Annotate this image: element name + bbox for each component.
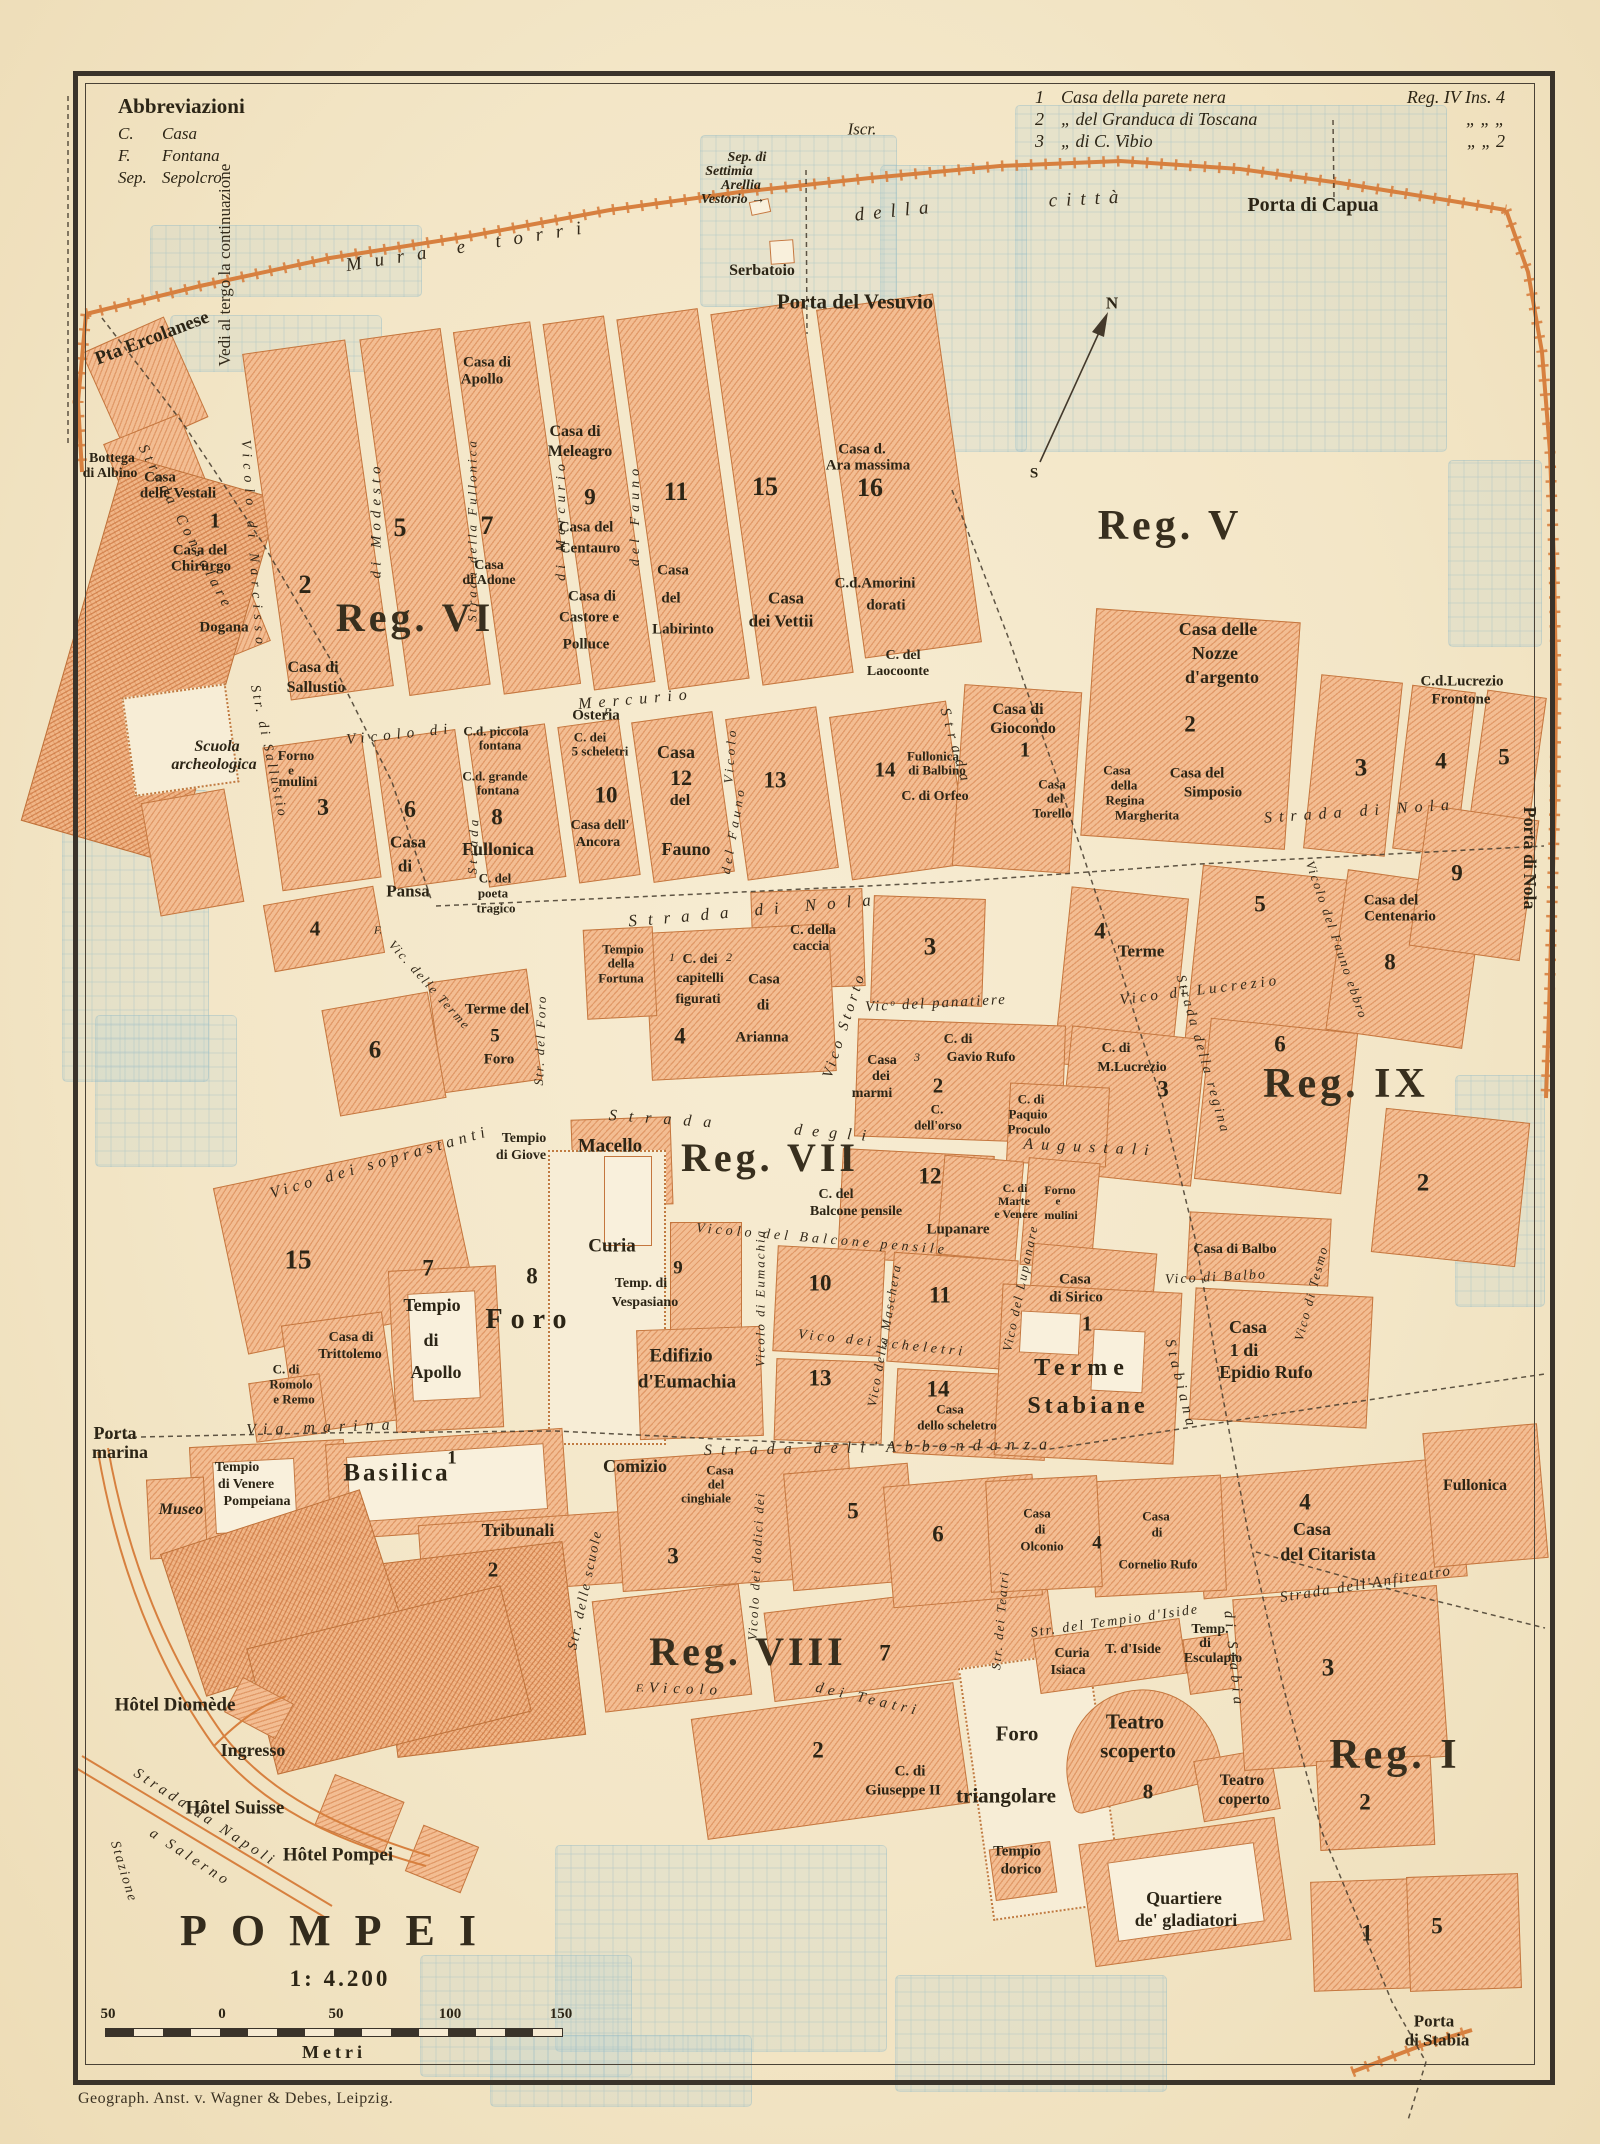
map-label: 9	[673, 1259, 683, 1278]
map-label: C. di	[273, 1363, 300, 1376]
map-label: Casa	[657, 564, 689, 579]
map-label: Casa	[1293, 1520, 1331, 1538]
map-label: 7	[879, 1642, 891, 1665]
map-label: Romolo	[269, 1378, 312, 1391]
map-label: di Albino	[83, 467, 138, 481]
map-sheet: Iscr.Sep. diSettimiaArelliaVestorio →Mur…	[0, 0, 1600, 2144]
map-label: Vicolo	[649, 1681, 724, 1699]
map-label: Casa di	[549, 424, 600, 440]
map-label: Casa	[1229, 1318, 1267, 1336]
publisher-imprint: Geograph. Anst. v. Wagner & Debes, Leipz…	[78, 2090, 393, 2108]
scale-number: 100	[439, 2006, 462, 2023]
map-label: Dogana	[199, 621, 248, 636]
map-label: C. del	[819, 1188, 854, 1202]
map-label: Fauno	[661, 840, 710, 858]
map-label: Fullonica	[1443, 1478, 1507, 1494]
map-label: Terme del	[465, 1003, 529, 1018]
map-label: Terme	[1118, 943, 1165, 960]
map-label: coperto	[1218, 1792, 1270, 1808]
map-title-block: POMPEI 1: 4.200	[140, 1905, 540, 1992]
map-label: 11	[664, 479, 689, 505]
map-label: 3	[667, 1545, 679, 1568]
map-label: 12	[919, 1165, 942, 1188]
insula-block	[769, 239, 795, 265]
map-label: 6	[369, 1038, 382, 1063]
map-label: del	[708, 1478, 725, 1491]
scale-number: 50	[329, 2006, 344, 2023]
map-label: Pompeiana	[224, 1495, 291, 1509]
map-label: 12	[670, 767, 692, 789]
map-label: Teatro	[1220, 1773, 1264, 1789]
map-label: Str. del Foro	[532, 994, 548, 1085]
map-label: Arianna	[735, 1031, 788, 1046]
map-label: di Adone	[462, 574, 515, 588]
map-label: Stazione	[107, 1840, 139, 1905]
map-label: fontana	[479, 739, 522, 752]
map-label: Hôtel Pompei	[283, 1846, 393, 1865]
map-label: Teatro	[1106, 1712, 1164, 1733]
map-label: del	[1047, 792, 1064, 805]
scale-number: 50	[101, 2006, 116, 2023]
map-label: del Fauno	[629, 464, 643, 566]
insula-block	[263, 886, 385, 972]
map-label: Marte	[998, 1195, 1030, 1207]
map-label: capitelli	[676, 972, 723, 986]
map-label: Porta del Vesuvio	[777, 292, 933, 313]
map-label: M.Lucrezio	[1097, 1061, 1166, 1075]
map-label: 2	[299, 572, 312, 598]
map-label: 4	[1092, 1534, 1102, 1553]
map-label: 3	[1322, 1656, 1335, 1681]
map-label: poeta	[478, 887, 508, 900]
map-label: Casa	[1038, 778, 1065, 791]
map-label: Casa delle	[1179, 620, 1258, 638]
scale-number: 0	[218, 2006, 226, 2023]
map-scale-ratio: 1: 4.200	[140, 1966, 540, 1992]
map-label: Centenario	[1364, 910, 1436, 925]
margin-note: Vedi al tergo la continuazione	[215, 70, 235, 460]
map-label: Casa di	[329, 1331, 374, 1345]
map-label: Vicolo	[722, 726, 739, 784]
map-label: C. dei	[683, 953, 718, 967]
map-label: 3	[1355, 756, 1368, 781]
map-label: 4	[1094, 920, 1106, 943]
map-label: 10	[595, 784, 618, 807]
map-label: Gavio Rufo	[947, 1051, 1016, 1065]
scale-bar-rule	[105, 2028, 563, 2037]
map-label: mulini	[279, 776, 318, 790]
map-label: Foro	[484, 1053, 515, 1068]
map-label: Casa di	[568, 590, 616, 605]
map-label: Tempio	[215, 1461, 260, 1475]
legend-house-row: 1Casa della parete neraReg. IV Ins. 4	[1035, 86, 1505, 108]
map-label: 11	[929, 1284, 951, 1307]
map-label: 3	[317, 796, 329, 820]
map-label: Casa	[1059, 1273, 1091, 1288]
map-label: N	[1106, 295, 1118, 312]
map-label: Scuola	[194, 739, 239, 755]
map-label: di	[757, 999, 770, 1014]
map-label: S	[1030, 467, 1038, 482]
map-label: e Remo	[273, 1393, 315, 1406]
map-label: dorati	[866, 599, 905, 614]
map-label: di Stabia	[1405, 2032, 1470, 2049]
map-label: C. dei	[574, 731, 607, 744]
map-label: città	[1048, 187, 1128, 210]
insula-block	[314, 1774, 404, 1853]
map-label: Casa dell'	[571, 819, 630, 833]
map-label: dei	[872, 1070, 890, 1084]
map-label: 1 di	[1230, 1341, 1259, 1359]
legend-houses: 1Casa della parete neraReg. IV Ins. 42„ …	[1035, 86, 1505, 152]
map-label: 5	[847, 1500, 859, 1523]
map-label: Sallustio	[287, 680, 346, 696]
map-label: di	[1035, 1523, 1046, 1536]
legend-house-row: 3„ di C. Vibio„ „ 2	[1035, 130, 1505, 152]
map-label: 2	[933, 1076, 944, 1097]
map-label: C.d. piccola	[463, 725, 528, 738]
map-label: Tribunali	[482, 1521, 555, 1539]
map-label: 14	[875, 760, 896, 781]
map-label: T. d'Iside	[1105, 1643, 1161, 1657]
map-label: Edifizio	[649, 1347, 712, 1366]
map-label: C. di	[1102, 1042, 1131, 1056]
map-label: de' gladiatori	[1135, 1911, 1238, 1929]
map-label: 1	[447, 1449, 457, 1468]
map-label: Ancora	[576, 836, 620, 850]
insula-block	[604, 1156, 652, 1246]
map-label: Casa	[768, 590, 804, 607]
map-label: Forno	[1044, 1184, 1075, 1196]
map-label: Casa	[706, 1464, 733, 1477]
map-label: Olconio	[1020, 1540, 1063, 1553]
map-label: della	[608, 957, 635, 970]
map-label: Museo	[159, 1502, 203, 1518]
map-label: Sep. di	[728, 151, 767, 165]
map-label: 3	[1157, 1078, 1169, 1101]
map-label: 9	[1451, 862, 1463, 885]
map-label: Curia	[1055, 1647, 1090, 1661]
map-label: 8	[491, 806, 503, 829]
map-label: Arellia	[721, 179, 761, 193]
map-label: Casa	[1103, 764, 1130, 777]
map-label: 2	[1417, 1171, 1430, 1196]
map-label: C.d. grande	[462, 770, 527, 783]
unexcavated-area	[95, 1015, 237, 1167]
map-label: Polluce	[563, 638, 610, 653]
scale-bar: 50050100150 Metri	[105, 2006, 563, 2066]
map-label: di	[1152, 1526, 1163, 1539]
map-label: 2	[1359, 1791, 1371, 1814]
map-label: Forno	[278, 750, 315, 764]
map-label: della	[1111, 779, 1138, 792]
map-label: caccia	[793, 940, 830, 954]
map-label: del Citarista	[1280, 1545, 1375, 1563]
map-label: Ara massima	[826, 459, 911, 474]
map-label: scoperto	[1100, 1741, 1176, 1762]
map-label: C.d.Amorini	[835, 577, 916, 592]
map-label: F.	[636, 1684, 644, 1695]
map-label: Torello	[1032, 807, 1071, 820]
map-label: Reg. VIII	[649, 1632, 847, 1672]
map-label: dei Vettii	[749, 613, 814, 630]
map-label: di Modesto	[370, 461, 385, 578]
map-label: Centauro	[560, 542, 621, 557]
map-label: Laocoonte	[867, 665, 929, 679]
map-label: C. di Orfeo	[901, 790, 968, 804]
map-label: fontana	[477, 784, 520, 797]
map-label: 5	[1498, 746, 1510, 769]
map-label: Casa del	[559, 521, 614, 536]
map-label: 3	[924, 935, 937, 960]
map-label: 8	[1143, 1782, 1154, 1803]
map-label: Temp.	[1191, 1623, 1228, 1637]
map-label: 6	[1274, 1033, 1286, 1056]
map-label: Foro	[485, 1306, 574, 1334]
map-label: 4	[1435, 750, 1447, 773]
map-label: Fullonica	[462, 840, 534, 858]
map-label: C. di	[1018, 1093, 1045, 1106]
map-label: Tempio	[403, 1296, 460, 1314]
map-label: figurati	[675, 993, 720, 1007]
map-label: Ingresso	[221, 1741, 286, 1759]
insula-block	[405, 1825, 479, 1894]
map-label: Labirinto	[652, 623, 714, 638]
map-label: 2	[726, 951, 732, 963]
map-label: C. di	[1003, 1182, 1028, 1194]
insula-block	[1019, 1310, 1081, 1355]
map-label: Balcone pensile	[810, 1205, 902, 1219]
map-label: C.	[931, 1103, 944, 1116]
map-label: e Venere	[994, 1208, 1037, 1220]
map-label: dell'orso	[914, 1119, 962, 1132]
scale-number: 150	[550, 2006, 573, 2023]
map-label: Serbatoio	[729, 263, 795, 279]
map-label: Meleagro	[548, 444, 613, 460]
map-label: Foro	[996, 1724, 1039, 1745]
map-label: 1	[669, 951, 675, 963]
insula-block	[374, 729, 476, 889]
map-label: Porta	[94, 1424, 137, 1442]
map-label: 1	[1020, 740, 1031, 761]
map-label: d'Eumachia	[638, 1373, 736, 1392]
map-label: Reg. I	[1329, 1734, 1460, 1776]
map-label: 6	[404, 798, 416, 822]
map-label: Porta di Capua	[1247, 195, 1378, 215]
map-label: di Sirico	[1049, 1291, 1103, 1306]
map-label: Casa	[748, 973, 780, 988]
map-label: 10	[809, 1272, 832, 1295]
map-label: 14	[927, 1378, 950, 1401]
map-label: Tempio	[502, 1132, 547, 1146]
map-label: Pansa	[386, 883, 429, 900]
map-label: Porta	[1414, 2013, 1455, 2030]
map-label: C. di	[895, 1765, 926, 1780]
map-label: Tempio	[602, 943, 643, 956]
map-label: dorico	[1001, 1863, 1042, 1878]
map-label: Proculo	[1007, 1123, 1050, 1136]
map-label: 4	[1299, 1491, 1311, 1514]
map-label: Reg. VII	[681, 1138, 859, 1178]
insula-block	[691, 1682, 970, 1840]
map-label: Casa del	[1170, 767, 1225, 782]
map-label: Casa	[867, 1054, 897, 1068]
map-label: Macello	[578, 1137, 642, 1156]
map-label: Casa di Balbo	[1193, 1243, 1276, 1257]
map-label: 1	[210, 511, 221, 532]
map-label: dello scheletro	[917, 1419, 997, 1432]
map-label: Epidio Rufo	[1219, 1363, 1313, 1381]
map-label: Castore e	[559, 611, 619, 626]
map-label: 4	[310, 919, 321, 940]
map-label: F.	[374, 926, 382, 937]
map-label: 16	[857, 475, 883, 501]
map-label: marmi	[852, 1087, 892, 1101]
map-label: 5 scheletri	[572, 745, 629, 758]
map-label: Margherita	[1115, 809, 1179, 822]
map-label: Casa del	[1364, 894, 1419, 909]
map-label: di	[1199, 1637, 1211, 1651]
map-label: 8	[526, 1265, 538, 1288]
map-label: Paquio	[1008, 1108, 1047, 1121]
map-label: Vespasiano	[612, 1296, 678, 1310]
map-label: Porta di Nola	[1521, 807, 1539, 910]
map-label: 9	[584, 486, 596, 509]
map-label: Fortuna	[598, 972, 644, 985]
map-label: Apollo	[410, 1363, 461, 1381]
map-label: mulini	[1044, 1209, 1077, 1221]
map-label: 15	[752, 474, 778, 500]
map-label: Casa di	[463, 356, 511, 371]
map-label: triangolare	[956, 1786, 1056, 1807]
map-label: 5	[1254, 893, 1266, 916]
map-label: Tempio	[993, 1845, 1041, 1860]
map-label: Casa	[657, 743, 695, 761]
map-label: Mercurio	[578, 687, 695, 713]
map-label: Basilica	[343, 1461, 450, 1486]
map-label: del	[661, 592, 680, 607]
map-label: tragico	[477, 902, 516, 915]
map-label: Casa di	[992, 702, 1043, 718]
map-label: Comizio	[603, 1457, 667, 1475]
insula-block	[1371, 1108, 1530, 1267]
map-label: 6	[932, 1523, 944, 1546]
map-label: Nozze	[1192, 644, 1238, 662]
map-label: Settimia	[705, 165, 752, 179]
map-label: Vicolo di Eumachia	[754, 1229, 767, 1367]
map-label: Via marina	[246, 1417, 398, 1438]
legend-house-rows: 1Casa della parete neraReg. IV Ins. 42„ …	[1035, 86, 1505, 152]
insula-block	[1406, 1873, 1522, 1992]
unexcavated-area	[1448, 460, 1542, 647]
map-label: 7	[481, 513, 494, 539]
map-label: 15	[285, 1247, 312, 1274]
map-label: di Giove	[496, 1149, 546, 1163]
map-label: Frontone	[1432, 693, 1491, 708]
map-label: d'argento	[1185, 668, 1259, 686]
map-label: Regina	[1106, 794, 1145, 807]
map-title: POMPEI	[140, 1905, 540, 1956]
map-label: Quartiere	[1146, 1889, 1222, 1907]
map-label: C. del	[886, 649, 921, 663]
map-label: cinghiale	[681, 1492, 731, 1505]
unexcavated-area	[1015, 105, 1447, 452]
map-label: Simposio	[1184, 786, 1242, 801]
legend-house-row: 2„ del Granduca di Toscana„ „ „	[1035, 108, 1505, 130]
map-label: Casa d.	[838, 443, 886, 458]
insula-block	[1189, 1287, 1374, 1428]
map-label: Lupanare	[926, 1223, 989, 1238]
map-label: 1	[1082, 1314, 1093, 1335]
scale-bar-unit: Metri	[105, 2042, 563, 2063]
map-label: Hôtel Diomède	[115, 1696, 236, 1715]
map-label: Casa	[1142, 1510, 1169, 1523]
map-label: Casa	[1023, 1507, 1050, 1520]
map-label: C.d.Lucrezio	[1420, 675, 1503, 690]
map-label: Giocondo	[990, 721, 1056, 737]
map-label: Isiaca	[1051, 1664, 1086, 1678]
map-label: 7	[422, 1257, 434, 1280]
map-label: di	[423, 1331, 438, 1349]
map-label: 8	[1384, 951, 1396, 974]
map-label: 13	[809, 1367, 832, 1390]
map-label: Stabiane	[1027, 1394, 1148, 1418]
insula-block	[1303, 674, 1403, 857]
map-label: C. del	[479, 872, 512, 885]
map-label: 1	[1361, 1922, 1373, 1945]
map-label: C. di	[944, 1033, 973, 1047]
map-label: 5	[1431, 1915, 1443, 1938]
map-label: marina	[92, 1443, 148, 1461]
map-label: 2	[488, 1560, 499, 1581]
map-label: Cornelio Rufo	[1118, 1558, 1197, 1571]
insula-block	[1422, 1423, 1548, 1568]
map-label: 3	[914, 1051, 920, 1063]
map-label: 13	[764, 769, 787, 792]
map-label: di Venere	[218, 1478, 274, 1492]
map-label: 4	[674, 1025, 686, 1048]
map-label: Casa	[936, 1403, 963, 1416]
insula-block	[428, 969, 543, 1094]
map-label: Temp. di	[615, 1277, 667, 1291]
map-label: Iscr.	[848, 121, 877, 138]
unexcavated-area	[895, 1975, 1167, 2092]
map-label: Casa	[390, 834, 426, 851]
map-label: 5	[394, 515, 407, 541]
map-label: Reg. V	[1098, 505, 1243, 547]
map-label: Reg. IX	[1263, 1063, 1429, 1105]
map-label: F.	[604, 708, 612, 719]
map-label: Reg. VI	[336, 598, 494, 638]
map-label: Casa di	[287, 660, 338, 676]
map-label: 5	[490, 1027, 500, 1046]
map-label: 2	[1184, 713, 1196, 736]
map-label: Bottega	[89, 452, 135, 466]
map-label: del	[670, 793, 690, 809]
map-label: C. della	[790, 924, 836, 938]
map-label: Vestorio →	[701, 193, 765, 207]
map-label: Giuseppe II	[865, 1784, 940, 1799]
map-label: Esculapio	[1184, 1652, 1242, 1666]
map-label: Trittolemo	[318, 1348, 382, 1362]
map-label: e	[1056, 1197, 1061, 1208]
map-label: Apollo	[461, 373, 504, 388]
map-label: 2	[812, 1739, 824, 1762]
map-label: archeologica	[171, 757, 256, 773]
map-label: Terme	[1034, 1356, 1130, 1380]
insula-block	[321, 991, 446, 1116]
map-label: Vico di Balbo	[1165, 1268, 1268, 1287]
